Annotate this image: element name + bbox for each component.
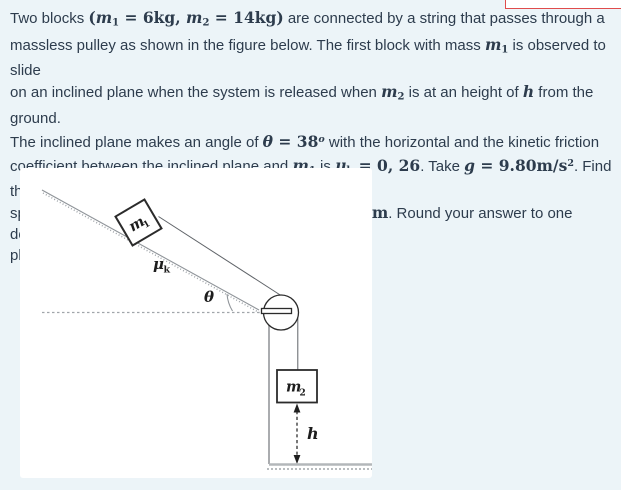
height-label: h — [307, 424, 319, 443]
incline-pulley-diagram: m 1 m 2 μ k θ h — [20, 168, 372, 478]
problem-text-segment: = 6kg, — [119, 8, 186, 27]
block-m2-label-sub: 2 — [300, 389, 306, 399]
theta-label: θ — [204, 288, 214, 306]
problem-text-segment: on an inclined plane when the system is … — [10, 84, 381, 101]
problem-text-segment: = 38 — [273, 132, 318, 151]
problem-text-segment: = 14kg) — [209, 8, 283, 27]
pulley-axle — [262, 309, 292, 314]
mu-k-label-sub: k — [164, 265, 171, 276]
problem-text-segment: Two blocks — [10, 10, 88, 27]
problem-text-segment: massless pulley as shown in the figure b… — [10, 37, 485, 54]
problem-text-segment: m — [485, 35, 501, 54]
problem-text-segment: m — [381, 82, 397, 101]
problem-text-segment: are connected by a string that passes th… — [284, 10, 605, 27]
problem-text-segment: g — [464, 156, 475, 175]
problem-text-segment: with the horizontal and the kinetic fric… — [325, 134, 599, 151]
problem-text-segment: . Take — [420, 158, 464, 175]
string-m1-to-pulley — [159, 217, 282, 296]
problem-text-segment: ( — [88, 8, 95, 27]
height-arrow-head-top — [294, 404, 301, 413]
problem-text-segment: 2 — [567, 158, 574, 169]
figure-panel: m 1 m 2 μ k θ h — [20, 168, 372, 478]
problem-text-segment: m — [96, 8, 112, 27]
mu-k-label: μ — [153, 255, 164, 273]
problem-text-segment: The inclined plane makes an angle of — [10, 134, 263, 151]
height-arrow-head-bottom — [294, 455, 301, 464]
problem-text-segment: m — [186, 8, 202, 27]
problem-text-segment: is at an height of — [404, 84, 522, 101]
problem-text-segment: h — [523, 82, 534, 101]
problem-text-segment: = 9.80m/s — [475, 156, 567, 175]
page: Two blocks (m1 = 6kg, m2 = 14kg) are con… — [0, 0, 621, 490]
block-m1: m 1 — [115, 199, 161, 245]
problem-text-segment: θ — [263, 132, 273, 151]
